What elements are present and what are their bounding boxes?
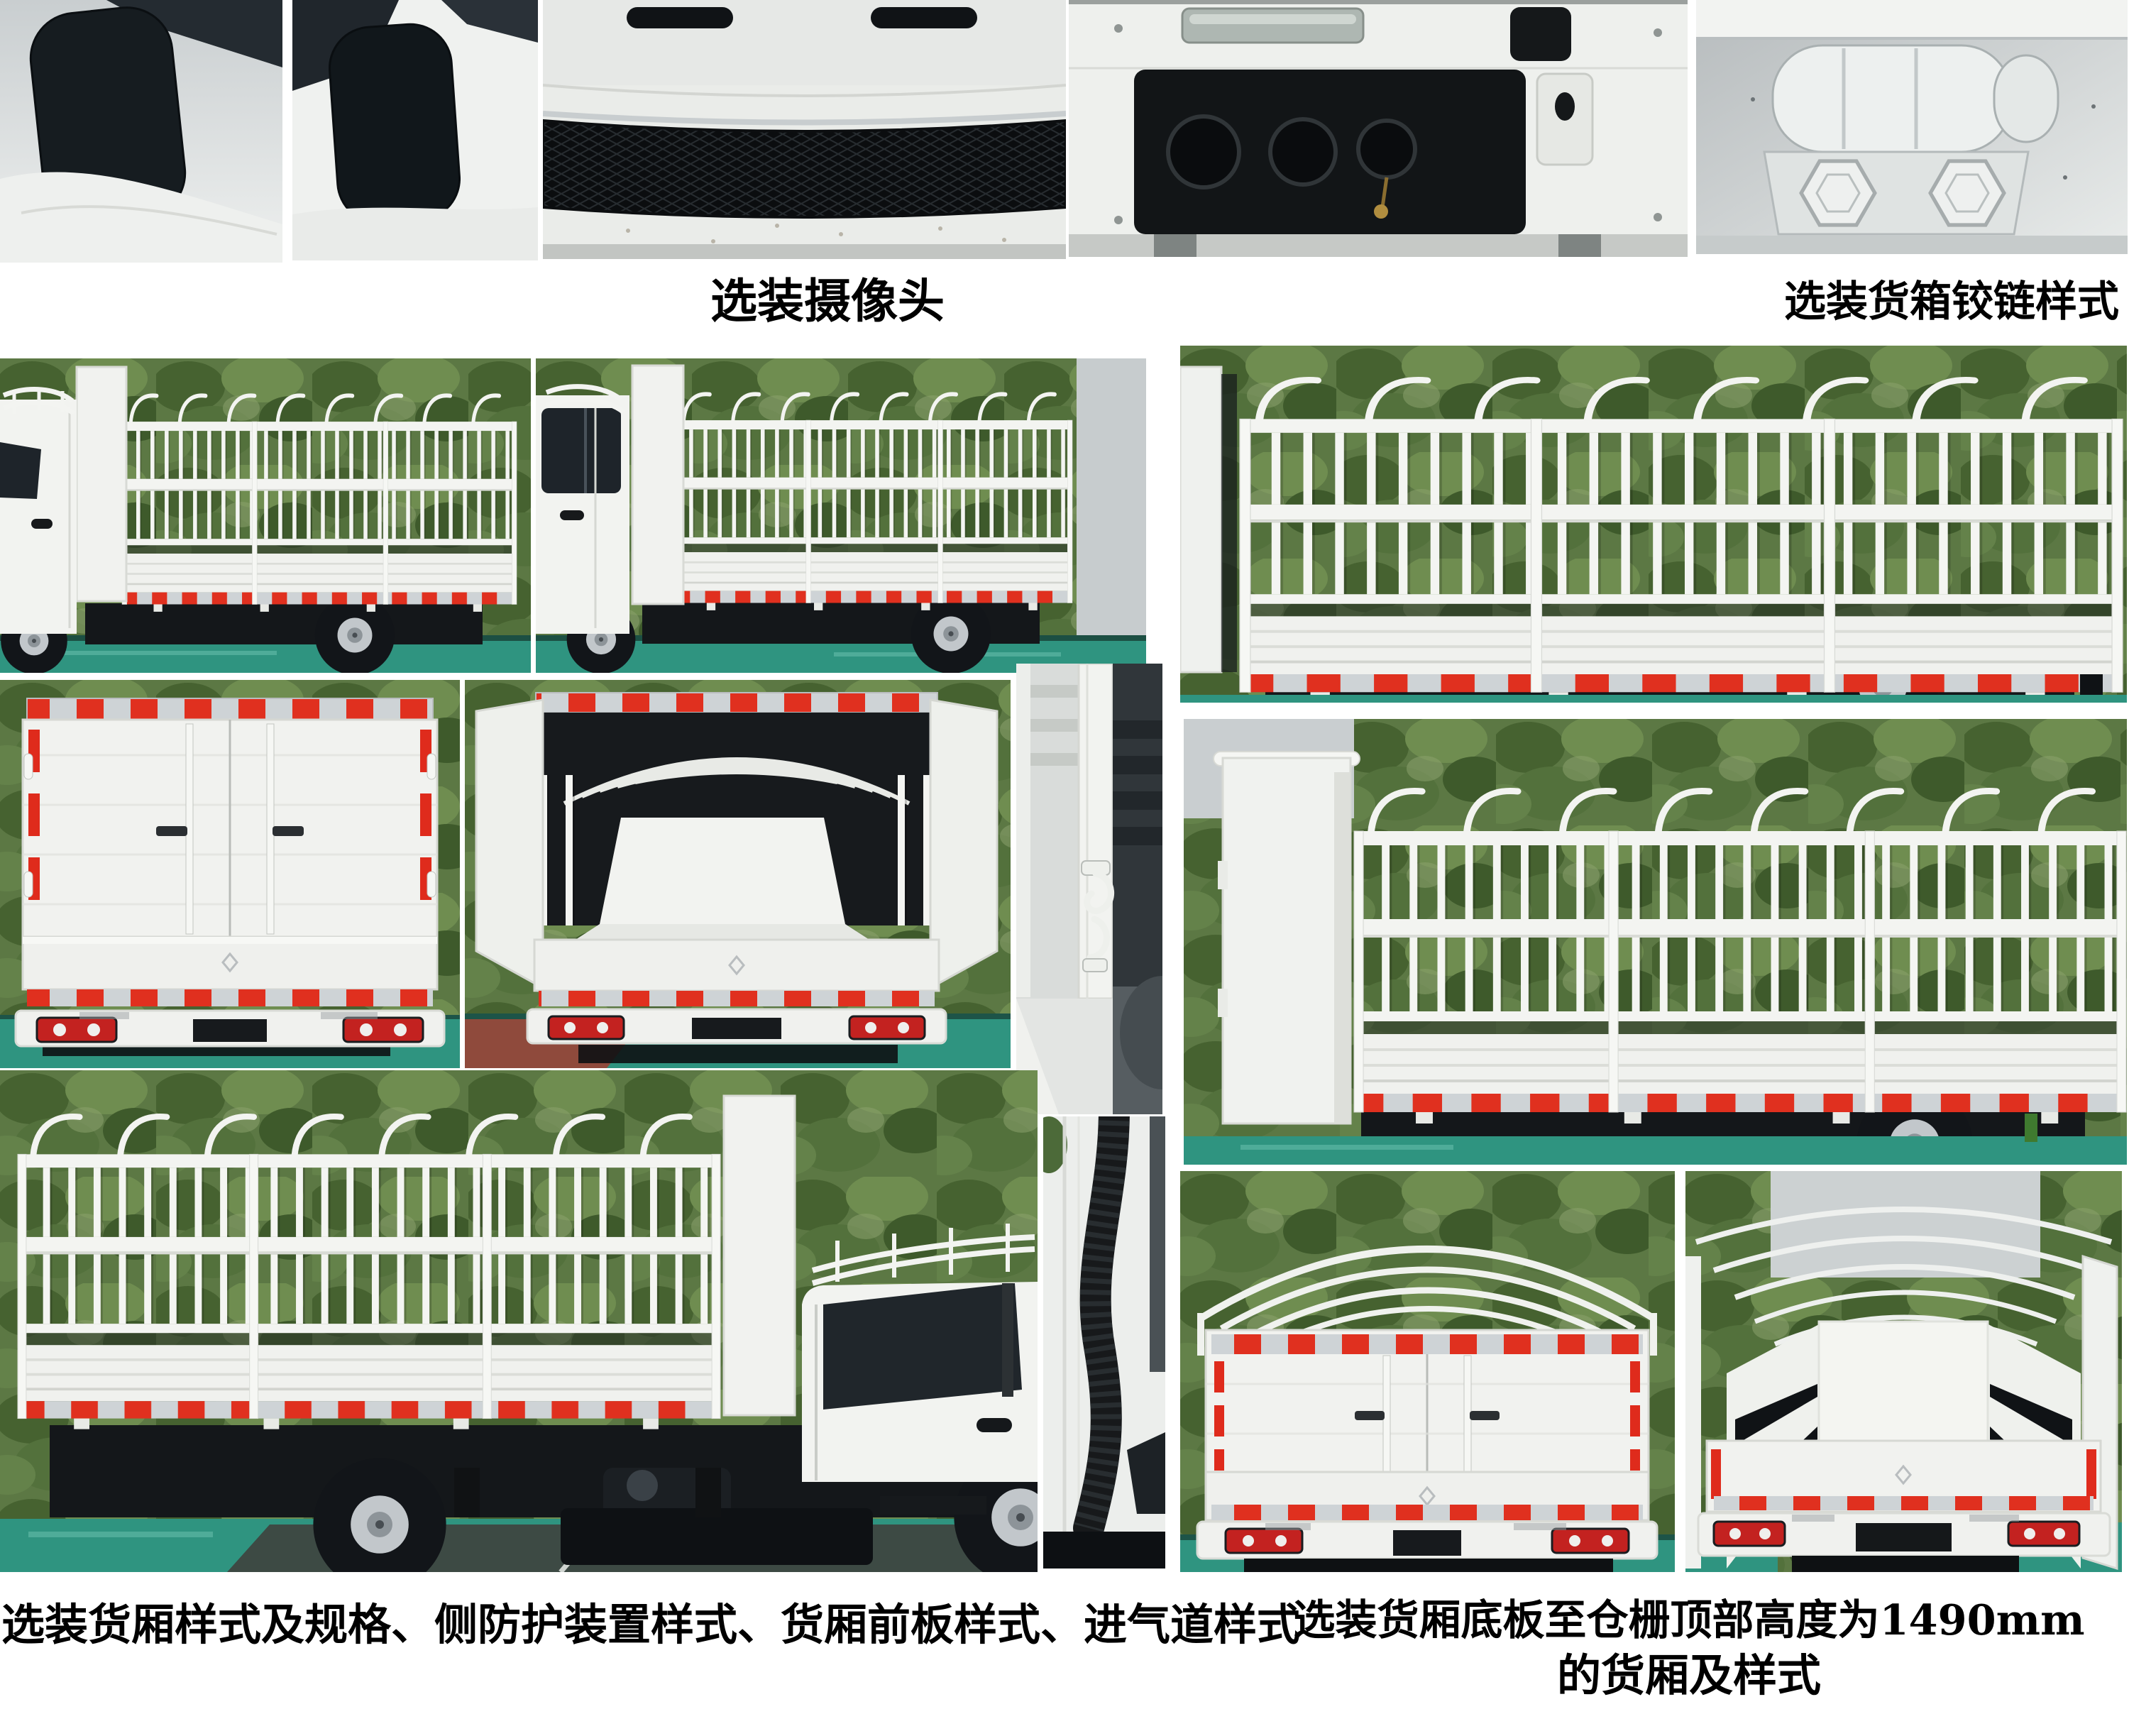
- photo-side-view-large: [0, 1070, 1087, 1591]
- photo-air-intake-duct: [1030, 1109, 1165, 1569]
- photo-front-grille: [543, 0, 1066, 259]
- photo-collage: [0, 0, 2129, 1736]
- photo-rear-view-closed: [0, 680, 460, 1068]
- photo-camera-mirror-2: [292, 0, 538, 260]
- photo-rear-view-doors-open: [465, 680, 1011, 1068]
- photo-cargo-box-side-2: [1184, 719, 2127, 1203]
- photo-rear-sill-panel: [1069, 0, 1688, 257]
- photo-side-view-truck-2: [536, 358, 1146, 674]
- photo-cargo-hinge-detail: [1696, 0, 2128, 254]
- photo-camera-mirror-1: [0, 0, 282, 263]
- caption-cargo-height-note: 选装货厢底板至仓栅顶部高度为1490mm 的货厢及样式: [1242, 1598, 2129, 1698]
- photo-rear-view-top-rails: [1180, 1171, 1675, 1572]
- photo-rear-view-door-open-interior: [1685, 1171, 2122, 1572]
- photo-cargo-box-side-1: [1180, 346, 2127, 742]
- photo-door-latch-detail: [1016, 664, 1205, 1114]
- caption-optional-camera: 选装摄像头: [586, 277, 1069, 326]
- caption-optional-cargo-styles: 选装货厢样式及规格、侧防护装置样式、货厢前板样式、进气道样式: [1, 1603, 1300, 1648]
- vehicle-photo-sheet: 选装摄像头 选装货箱铰链样式 选装货厢样式及规格、侧防护装置样式、货厢前板样式、…: [0, 0, 2129, 1736]
- caption-cargo-height-line1: 选装货厢底板至仓栅顶部高度为1490mm: [1242, 1598, 2129, 1642]
- caption-optional-cargo-hinge: 选装货箱铰链样式: [1778, 280, 2125, 324]
- photo-side-view-truck-1: [0, 358, 531, 675]
- caption-cargo-height-line2: 的货厢及样式: [1242, 1652, 2129, 1698]
